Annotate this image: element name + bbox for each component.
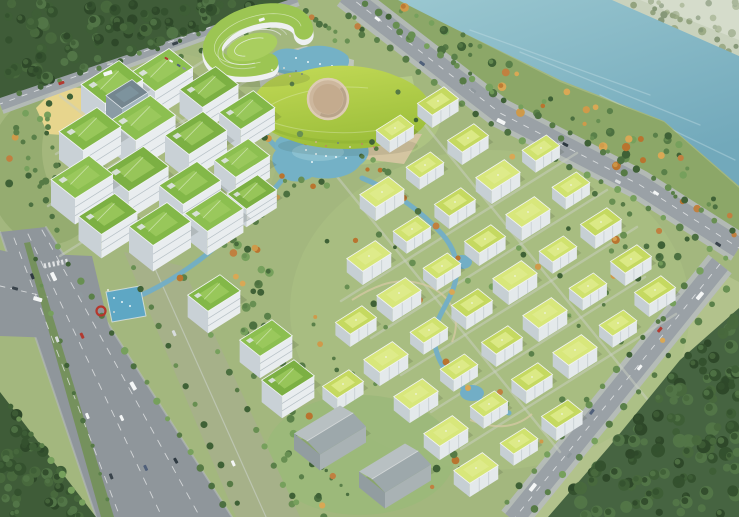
tree [208, 332, 214, 338]
tree [261, 443, 267, 449]
tree [4, 484, 12, 492]
tree [369, 139, 375, 145]
tree [566, 164, 572, 170]
tree [646, 206, 652, 212]
tree [299, 474, 304, 479]
skylight [445, 430, 447, 432]
tree-highlight [666, 386, 673, 393]
tree [50, 145, 54, 149]
tree [362, 1, 368, 7]
tree [675, 141, 682, 148]
tree-highlight [189, 21, 194, 26]
tree [621, 202, 626, 207]
skylight [471, 302, 473, 304]
tree [652, 372, 658, 378]
fountain-jet [345, 157, 347, 159]
tree [625, 135, 632, 142]
skylight [437, 100, 439, 102]
tree-highlight [42, 73, 49, 80]
tree [38, 84, 44, 90]
tree-highlight [709, 353, 715, 359]
fountain-jet [129, 305, 131, 307]
tree [709, 301, 715, 307]
tree [49, 214, 54, 219]
skylight [411, 228, 413, 230]
tree [26, 156, 31, 161]
tree [680, 171, 687, 178]
tree [384, 169, 391, 176]
skylight [531, 376, 533, 378]
tree [711, 218, 717, 224]
person [113, 311, 115, 313]
tree-highlight [517, 109, 522, 114]
tree [161, 8, 169, 16]
tree-highlight [165, 18, 170, 23]
tree [665, 132, 672, 139]
tree [602, 474, 610, 482]
tree-highlight [129, 1, 134, 6]
tree-highlight [710, 370, 717, 377]
tree-highlight [255, 281, 260, 286]
tree [535, 264, 541, 270]
tree [395, 89, 400, 94]
tree [449, 289, 455, 295]
tree [53, 162, 59, 168]
tree-highlight [37, 45, 43, 51]
tree [541, 104, 546, 109]
tree [620, 403, 627, 410]
tree [584, 397, 590, 403]
tree [137, 286, 143, 292]
tree-highlight [168, 28, 175, 35]
tree-highlight [250, 322, 255, 327]
tree-highlight [8, 0, 13, 5]
tree [383, 325, 388, 330]
tree-highlight [660, 469, 666, 475]
tree [47, 457, 54, 464]
tree [468, 53, 472, 57]
tree [519, 137, 526, 144]
tree-highlight [23, 59, 28, 64]
tree-highlight [634, 415, 640, 421]
tree [557, 273, 562, 278]
tree [346, 493, 349, 496]
tree [240, 281, 246, 287]
tree [25, 172, 31, 178]
tree [714, 37, 720, 43]
tree-highlight [113, 23, 118, 28]
tree [252, 245, 258, 251]
tree [723, 464, 731, 472]
skylight [398, 292, 400, 294]
tree [501, 98, 507, 104]
tree-highlight [22, 430, 28, 436]
person [107, 289, 109, 291]
tree [728, 382, 735, 389]
tree-highlight [731, 433, 738, 440]
tree [653, 133, 658, 138]
tree [28, 431, 33, 436]
tree-highlight [14, 510, 19, 515]
tree [661, 215, 667, 221]
tree [91, 444, 95, 448]
tree [713, 204, 718, 209]
tree [577, 324, 581, 328]
skylight [501, 339, 503, 341]
tree [5, 36, 12, 43]
tree [378, 168, 383, 173]
tree [468, 72, 472, 76]
tree-highlight [642, 477, 648, 483]
tree [529, 351, 535, 357]
skylight [600, 221, 602, 223]
tree [317, 341, 323, 347]
tree [283, 191, 290, 198]
tree [332, 38, 337, 43]
tree [393, 245, 397, 249]
tree-highlight [621, 502, 628, 509]
tree [674, 253, 682, 261]
tree [345, 285, 350, 290]
tree-highlight [5, 13, 10, 18]
tree [558, 135, 564, 141]
tree [684, 352, 692, 360]
skylight [617, 322, 619, 324]
tree-highlight [632, 500, 637, 505]
tree [614, 186, 621, 193]
tree-highlight [656, 437, 661, 442]
tree-highlight [48, 7, 54, 13]
tree [424, 43, 430, 49]
tree [22, 110, 29, 117]
tree [651, 176, 656, 181]
tree-highlight [699, 28, 704, 33]
tree-highlight [197, 3, 201, 7]
tree [29, 443, 37, 451]
tree [576, 454, 583, 461]
tree [621, 169, 628, 176]
tree-highlight [242, 253, 247, 258]
person [271, 69, 273, 71]
tree [699, 366, 707, 374]
skylight [484, 238, 486, 240]
tree [121, 347, 129, 355]
tree-highlight [718, 437, 725, 444]
tree [393, 22, 400, 29]
tree [48, 311, 54, 317]
tree [60, 58, 68, 66]
skylight [540, 147, 542, 149]
tree [244, 246, 251, 253]
tree [583, 106, 590, 113]
tree [451, 54, 458, 61]
tree [516, 245, 522, 251]
tree [319, 502, 325, 508]
tree [431, 79, 438, 86]
tree [660, 316, 666, 322]
tree [37, 116, 43, 122]
tree [652, 6, 657, 11]
tree-highlight [728, 319, 735, 326]
tree-highlight [727, 422, 735, 430]
tree [155, 47, 160, 52]
tree [16, 416, 21, 421]
tree-highlight [726, 341, 733, 348]
tree [606, 150, 610, 154]
skylight [518, 440, 520, 442]
person [283, 67, 285, 69]
tree [149, 304, 154, 309]
tree [429, 20, 435, 26]
person [295, 70, 297, 72]
tree [698, 504, 706, 512]
tree [253, 427, 259, 433]
tree-highlight [592, 507, 598, 513]
tree [165, 416, 170, 421]
skylight [630, 258, 632, 260]
tree-highlight [15, 464, 22, 471]
tree [661, 169, 667, 175]
skylight [415, 393, 417, 395]
tree [145, 380, 150, 385]
tree-highlight [693, 436, 699, 442]
tree [606, 421, 613, 428]
tree [539, 439, 543, 443]
tree [409, 260, 416, 267]
tree [613, 366, 620, 373]
tree [131, 265, 136, 270]
tree-highlight [690, 360, 695, 365]
tree [316, 493, 322, 499]
skylight [467, 137, 469, 139]
tree [105, 497, 109, 501]
tree [77, 278, 84, 285]
tree-highlight [80, 64, 85, 69]
tree [280, 482, 286, 488]
tree-highlight [727, 453, 732, 458]
tree-highlight [623, 151, 628, 156]
tree-highlight [217, 2, 221, 6]
fountain-jet [113, 297, 115, 299]
tree [188, 449, 194, 455]
tree-highlight [180, 28, 185, 33]
tree [374, 37, 380, 43]
skylight [557, 248, 559, 250]
tree [59, 471, 66, 478]
tree [29, 202, 34, 207]
tree [641, 438, 648, 445]
tree [584, 172, 591, 179]
tree [287, 415, 295, 423]
tree [695, 318, 703, 326]
tree [638, 136, 644, 142]
tree-highlight [37, 0, 43, 5]
tree [297, 131, 303, 137]
tree [120, 23, 128, 31]
tree-highlight [127, 46, 134, 53]
tree-highlight [2, 495, 7, 500]
tree-highlight [706, 404, 713, 411]
tree-highlight [36, 53, 42, 59]
tree-highlight [734, 449, 739, 454]
tree [235, 388, 240, 393]
skylight [394, 127, 396, 129]
tree-highlight [241, 328, 245, 332]
person [315, 141, 317, 143]
tree [591, 438, 598, 445]
tree [332, 357, 336, 361]
tree [602, 303, 606, 307]
tree [723, 285, 730, 292]
tree-highlight [266, 269, 271, 274]
tree-highlight [89, 16, 96, 23]
fountain-jet [311, 161, 313, 163]
tree [656, 228, 662, 234]
tree-highlight [623, 144, 628, 149]
tree [79, 499, 85, 505]
tree [244, 406, 250, 412]
tree-highlight [681, 497, 688, 504]
tree-highlight [111, 5, 117, 11]
tree-highlight [8, 472, 14, 478]
tree [559, 471, 566, 478]
tree-highlight [12, 410, 18, 416]
tree-highlight [719, 329, 725, 335]
skylight [527, 211, 529, 213]
tree [345, 38, 350, 43]
tree [414, 14, 418, 18]
tree [208, 483, 215, 490]
tree-highlight [731, 464, 737, 470]
tree [459, 77, 466, 84]
skylight [441, 265, 443, 267]
tree [596, 119, 600, 123]
tree [333, 30, 337, 34]
tree-highlight [696, 453, 702, 459]
tree-highlight [611, 468, 618, 475]
tree [644, 243, 650, 249]
tree-highlight [33, 67, 38, 72]
tree [681, 197, 688, 204]
tree [714, 423, 722, 431]
tree-highlight [102, 2, 109, 9]
tree [370, 300, 377, 307]
skylight [454, 201, 456, 203]
tree [699, 207, 704, 212]
tree-highlight [575, 483, 582, 490]
tree [656, 509, 663, 516]
tree-highlight [5, 69, 11, 75]
skylight [424, 164, 426, 166]
tree [111, 39, 119, 47]
tree [707, 202, 712, 207]
tree [40, 284, 44, 288]
tree [67, 94, 73, 100]
tree [709, 438, 716, 445]
tree [8, 404, 14, 410]
tree [94, 55, 101, 62]
tree-highlight [659, 261, 663, 265]
tree [465, 385, 471, 391]
skylight [385, 356, 387, 358]
tree [153, 398, 160, 405]
tree [472, 111, 479, 118]
tree [77, 69, 83, 75]
tree [177, 275, 184, 282]
tree [627, 211, 632, 216]
tree [607, 108, 613, 114]
tree [609, 248, 614, 253]
tree [33, 257, 38, 262]
tree [640, 157, 646, 163]
tree [330, 473, 336, 479]
tree [72, 391, 76, 395]
tree [707, 246, 713, 252]
tree-highlight [458, 43, 463, 48]
tree [365, 167, 369, 171]
person [277, 73, 279, 75]
tree-highlight [596, 462, 602, 468]
tree [633, 165, 640, 172]
tree [219, 501, 226, 508]
tree-highlight [652, 445, 660, 453]
tree [285, 451, 291, 457]
tree [626, 352, 632, 358]
tree-highlight [650, 471, 656, 477]
tree-highlight [636, 424, 643, 431]
tree-highlight [677, 509, 682, 514]
tree-highlight [38, 18, 45, 25]
tree [599, 179, 604, 184]
skylight [368, 255, 370, 257]
tree [408, 31, 416, 39]
tree [250, 288, 256, 294]
tree [680, 338, 686, 344]
tree [89, 294, 95, 300]
tree-highlight [703, 390, 709, 396]
tree [250, 301, 257, 308]
tree [636, 389, 641, 394]
tree [415, 69, 421, 75]
fountain-jet [121, 301, 123, 303]
tree [531, 505, 539, 513]
tree [570, 116, 574, 120]
skylight [570, 184, 572, 186]
tree [68, 487, 75, 494]
tree [430, 485, 434, 489]
tree-highlight [23, 475, 30, 482]
tree [681, 282, 688, 289]
tree [544, 451, 550, 457]
tree-highlight [575, 497, 582, 504]
tree [306, 412, 313, 419]
tree [516, 482, 523, 489]
tree [197, 464, 204, 471]
tree [454, 63, 460, 69]
tree-highlight [33, 10, 39, 16]
tree-highlight [668, 373, 674, 379]
tree [325, 239, 330, 244]
skylight [355, 319, 357, 321]
aerial-campus-rendering [0, 0, 739, 517]
tree [131, 363, 137, 369]
tree [54, 227, 59, 232]
tree [545, 489, 551, 495]
tree [620, 232, 627, 239]
tree [468, 43, 473, 48]
skylight [381, 191, 383, 193]
tree-highlight [141, 25, 148, 32]
